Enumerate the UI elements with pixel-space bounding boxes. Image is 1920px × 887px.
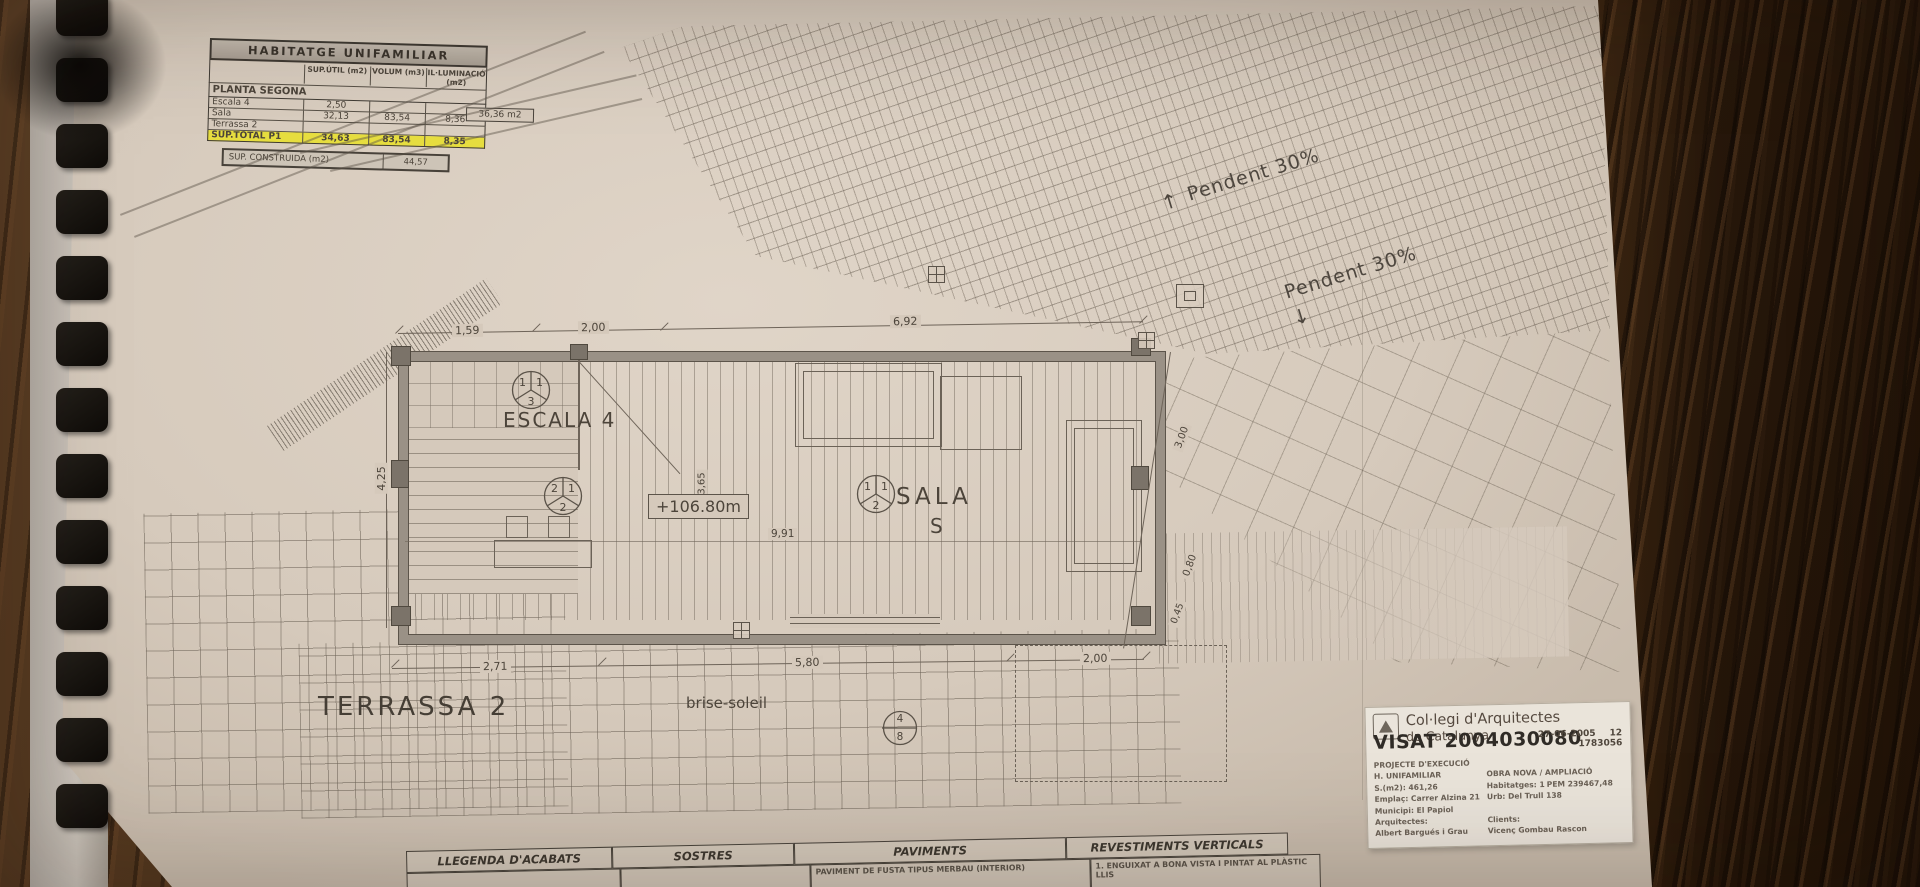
level-annotation: +106.80m <box>648 494 749 519</box>
terrassa-label: TERRASSA 2 <box>318 692 509 722</box>
chair-outline <box>548 516 570 538</box>
stamp-ref: 1783056 <box>1538 738 1622 750</box>
dim-line-top <box>398 321 1143 334</box>
finish-key-circle: 1 1 2 <box>856 474 896 514</box>
binding-comb <box>56 718 108 762</box>
drain-cross-icon <box>1138 332 1155 349</box>
binding-comb <box>56 784 108 828</box>
wall-pier <box>1131 606 1151 626</box>
dim-label: 4,25 <box>375 463 388 494</box>
legend-revestiments-item: 1. ENGUIXAT A BONA VISTA I PINTAT AL PLÀ… <box>1090 854 1321 887</box>
dashed-pergola-outline <box>1015 645 1227 782</box>
desk-outline <box>494 540 592 568</box>
binding-comb <box>56 190 108 234</box>
roof-window-icon <box>1176 284 1204 308</box>
sliding-door-opening <box>790 614 940 628</box>
binding-comb <box>56 322 108 366</box>
photo-of-floor-plan: 1,59 2,00 6,92 4,25 3,65 9,91 3,00 0,80 … <box>0 0 1920 887</box>
drain-cross-icon <box>928 266 945 283</box>
escala-label: ESCALA 4 <box>503 408 616 432</box>
stamp-page: 12 <box>1609 728 1622 738</box>
area-summary-table: HABITATGE UNIFAMILIAR SUP.ÚTIL (m2) VOLU… <box>207 38 488 148</box>
sofa-right-inner <box>1074 428 1134 564</box>
finish-key-circle: 1 1 3 <box>511 370 551 410</box>
table-outline <box>940 376 1022 450</box>
dim-label: 9,91 <box>768 528 797 540</box>
dim-label: 2,00 <box>1080 652 1111 665</box>
binding-comb <box>56 652 108 696</box>
stamp-meta: 27-06-2005 12 1783056 <box>1538 728 1623 750</box>
brise-soleil-label: brise-soleil <box>686 694 767 712</box>
wall-pier <box>1131 466 1149 490</box>
chair-outline <box>506 516 528 538</box>
binding-comb <box>56 520 108 564</box>
drain-cross-icon <box>733 622 750 639</box>
legend-paviments-item: PAVIMENT DE FUSTA TIPUS MERBAU (INTERIOR… <box>810 859 1091 887</box>
dim-label: 1,59 <box>452 324 483 338</box>
wall-pier <box>391 346 411 366</box>
stamp-project-details: PROJECTE D'EXECUCIÓ H. UNIFAMILIAROBRA N… <box>1374 754 1626 839</box>
finish-key-circle: 2 1 2 <box>543 476 583 516</box>
dim-line-interior <box>405 541 1140 542</box>
binding-comb <box>56 388 108 432</box>
section-marker-circle: 4 8 <box>882 710 918 746</box>
architects-college-stamp: Col·legi d'Arquitectes de Catalunya VISA… <box>1364 701 1633 849</box>
wall-pier <box>391 606 411 626</box>
binding-comb <box>56 256 108 300</box>
col-header: IL·LUMINACIÓ (m2) <box>427 68 487 88</box>
terrace-area-note: 36,36 m2 <box>466 107 534 122</box>
binding-comb <box>56 454 108 498</box>
binding-comb <box>56 586 108 630</box>
dim-label: 6,92 <box>890 315 921 329</box>
sofa-inner-outline <box>803 371 934 439</box>
sala-letter-label: S <box>930 514 943 538</box>
corner-shadow <box>0 0 200 170</box>
wall-pier <box>391 460 409 488</box>
wall-pier <box>570 344 588 360</box>
dim-label: 5,80 <box>792 656 823 669</box>
finishes-legend-table: LLEGENDA D'ACABATS SOSTRES PAVIMENTS REV… <box>406 832 1321 887</box>
col-header: SUP.ÚTIL (m2) <box>304 65 371 86</box>
dim-label: 2,00 <box>578 321 609 335</box>
dim-label: 2,71 <box>480 660 511 673</box>
fold-line <box>1362 280 1363 800</box>
col-header: VOLUM (m3) <box>370 67 427 87</box>
sala-label: SALA <box>896 484 972 510</box>
